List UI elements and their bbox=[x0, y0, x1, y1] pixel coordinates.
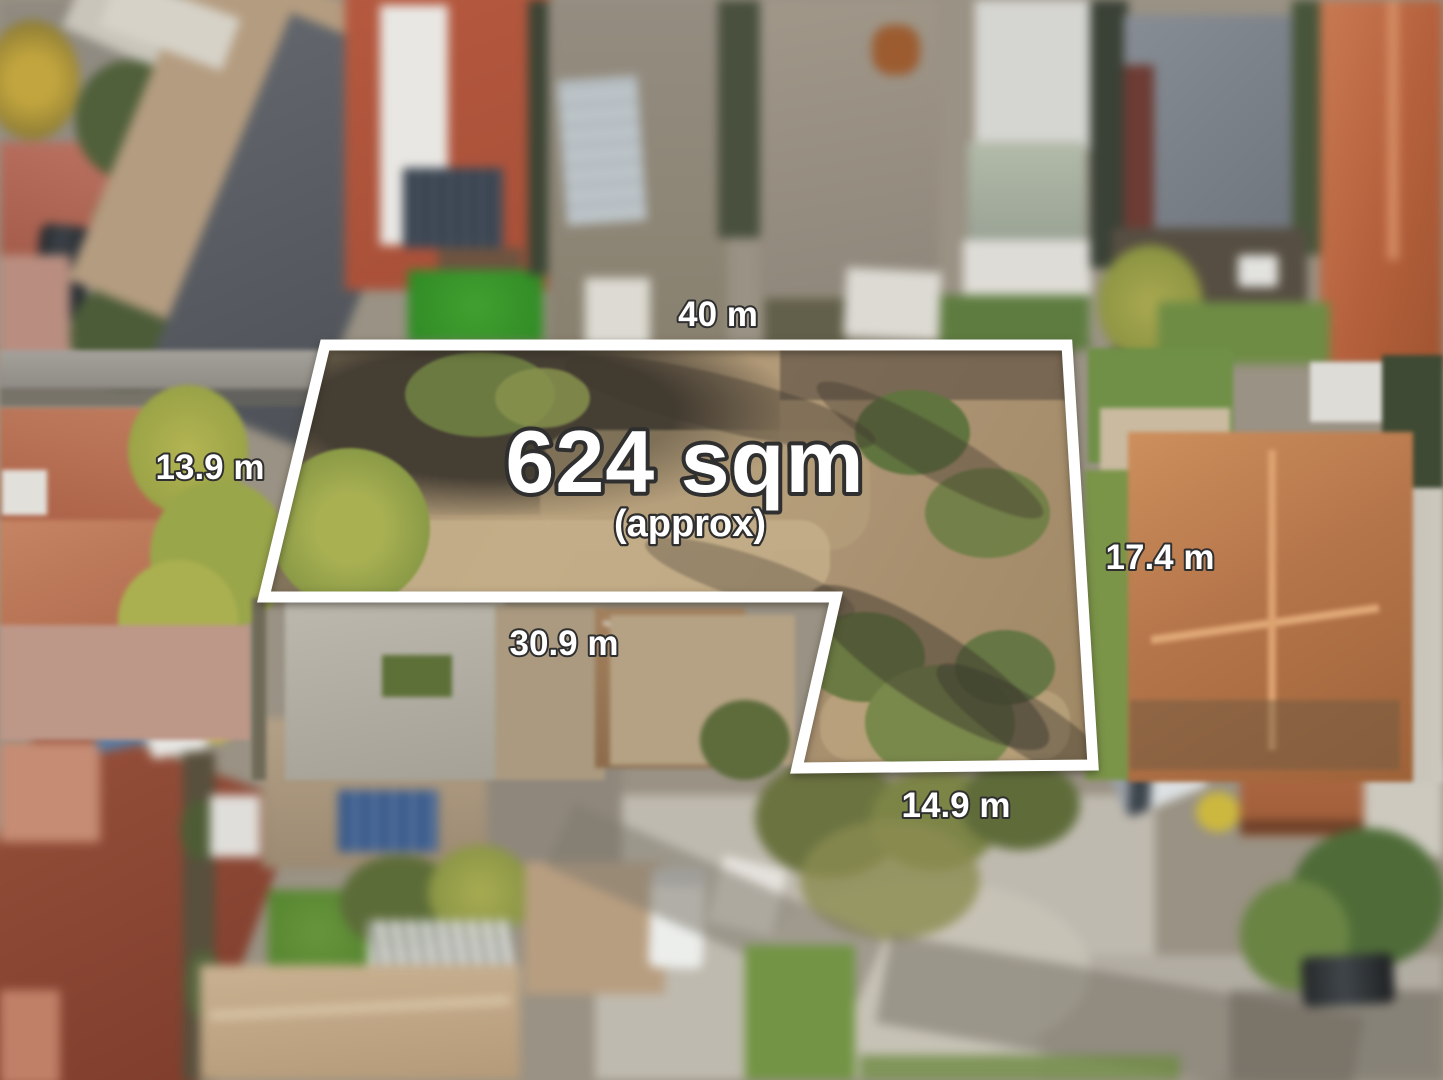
dimension-bottom-left: 30.9 m bbox=[510, 624, 619, 663]
aerial-property-photo: 624 sqm (approx) 40 m 13.9 m 17.4 m 30.9… bbox=[0, 0, 1443, 1080]
dimension-left: 13.9 m bbox=[156, 448, 265, 487]
dimension-right: 17.4 m bbox=[1106, 538, 1215, 577]
lot-boundary-outline bbox=[264, 345, 1093, 768]
dimension-bottom: 14.9 m bbox=[902, 786, 1011, 825]
dimension-top: 40 m bbox=[678, 295, 758, 334]
area-label: 624 sqm bbox=[505, 412, 864, 511]
area-approx-label: (approx) bbox=[614, 503, 766, 545]
annotation-overlay: 624 sqm (approx) 40 m 13.9 m 17.4 m 30.9… bbox=[0, 0, 1443, 1080]
